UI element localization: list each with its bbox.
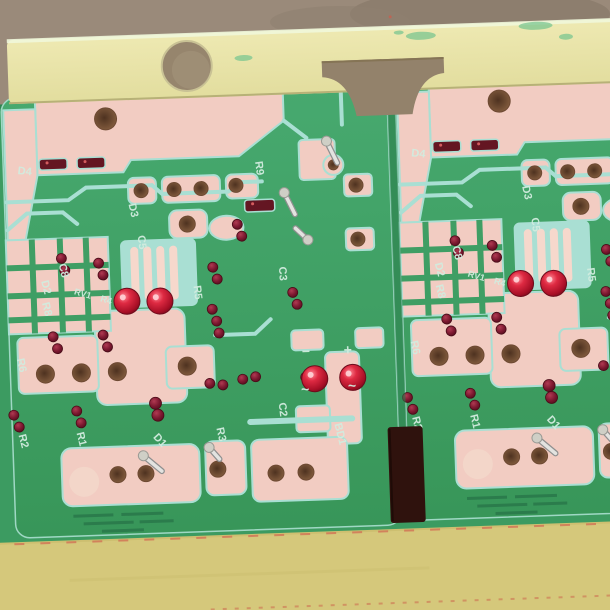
pcb-macro-photo: D4 R9 D3 C5 C8 D2 R8 RV1 R4 R5 C3 R6 C2 … <box>0 0 610 610</box>
pcb-scene <box>0 2 610 610</box>
pcb-panel-right <box>391 67 610 520</box>
pcb-panel-left <box>0 85 402 538</box>
pcb-photo-svg: D4 R9 D3 C5 C8 D2 R8 RV1 R4 R5 C3 R6 C2 … <box>0 0 610 610</box>
